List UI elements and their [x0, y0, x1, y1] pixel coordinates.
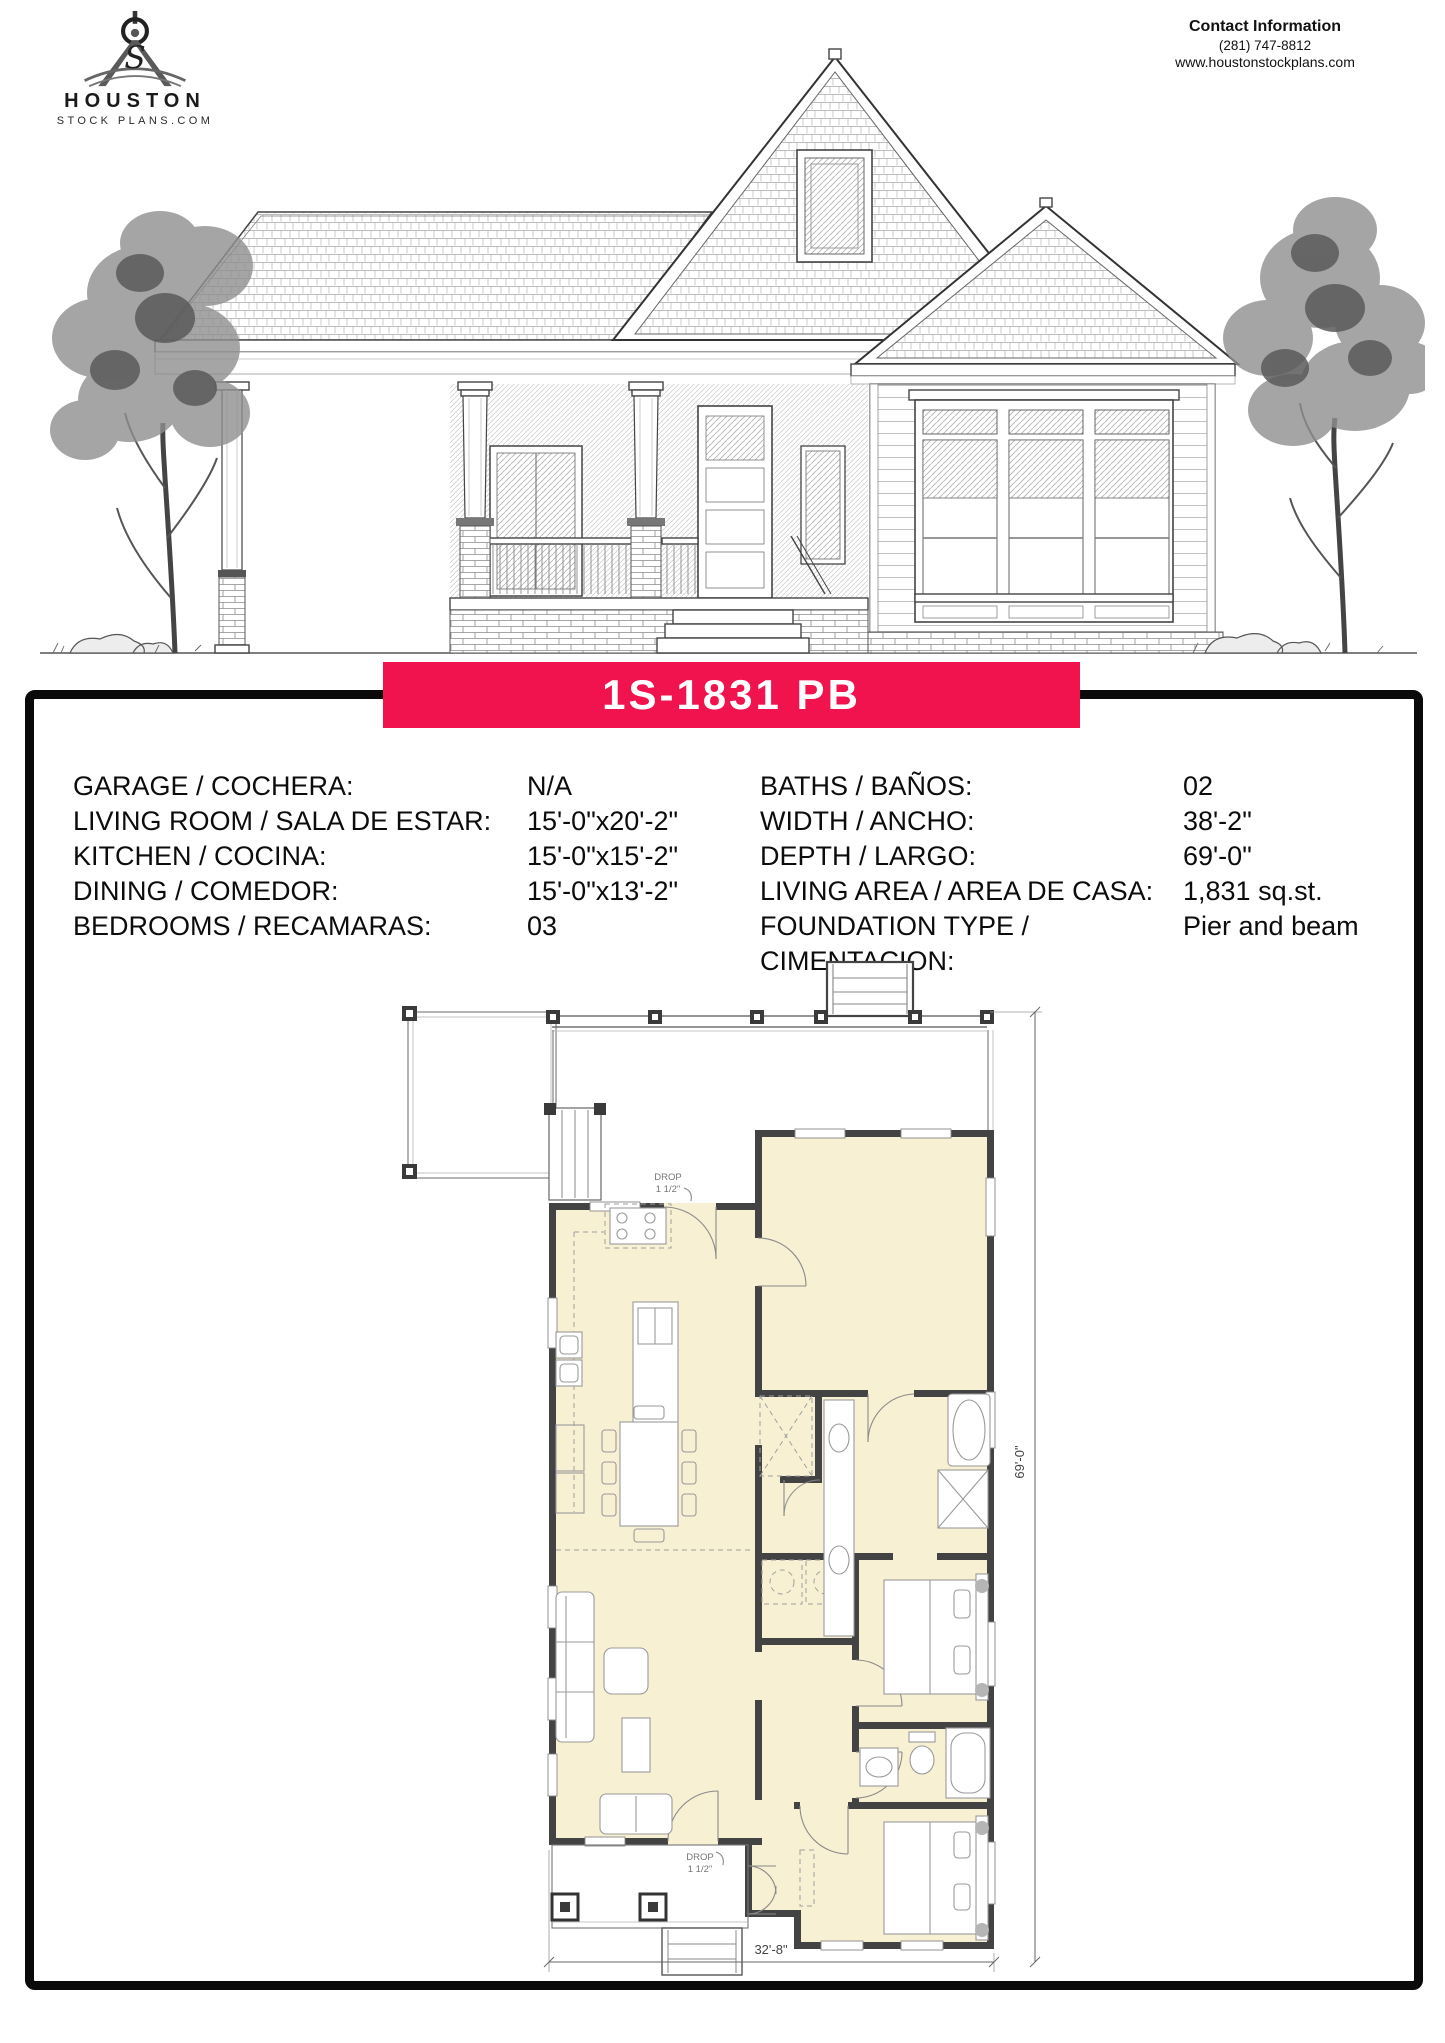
left-rocks — [70, 634, 173, 653]
porch-steps — [662, 1928, 742, 1975]
spec-value: 69'-0" — [1183, 839, 1359, 874]
plan-code-banner: 1S-1831 PB — [383, 662, 1080, 728]
window — [986, 1178, 995, 1236]
svg-text:DROP: DROP — [686, 1852, 713, 1863]
drop-note-entry: DROP 1 1/2" — [686, 1852, 723, 1875]
spec-label: LIVING AREA / AREA DE CASA: — [760, 874, 1153, 909]
svg-text:1 1/2": 1 1/2" — [656, 1184, 681, 1195]
right-tree — [1193, 197, 1425, 653]
spec-value: 38'-2" — [1183, 804, 1359, 839]
spec-label: KITCHEN / COCINA: — [73, 839, 491, 874]
spec-value: N/A — [527, 769, 678, 804]
house-elevation-drawing — [25, 38, 1425, 658]
bay-brick-skirt — [863, 632, 1223, 653]
svg-text:69'-0": 69'-0" — [1012, 1445, 1027, 1479]
front-door — [698, 406, 772, 598]
bathtub — [948, 1394, 990, 1466]
door-sidelight-window — [801, 446, 845, 564]
spec-values-right: 02 38'-2" 69'-0" 1,831 sq.st. Pier and b… — [1183, 769, 1359, 944]
window — [901, 1129, 951, 1138]
spec-label: DEPTH / LARGO: — [760, 839, 1153, 874]
svg-text:32'-8": 32'-8" — [754, 1942, 788, 1957]
floor-plan-drawing: DROP 1 1/2" DROP 1 1/2" 32'-8" 69'-0" — [395, 950, 1095, 2010]
spec-value: 15'-0"x15'-2" — [527, 839, 678, 874]
plan-code: 1S-1831 PB — [602, 671, 861, 719]
plan-sheet: S HOUSTON STOCK PLANS.COM Contact Inform… — [0, 0, 1445, 2043]
spec-value: 1,831 sq.st. — [1183, 874, 1359, 909]
spec-labels-right: BATHS / BAÑOS: WIDTH / ANCHO: DEPTH / LA… — [760, 769, 1153, 979]
spec-label: BATHS / BAÑOS: — [760, 769, 1153, 804]
spec-values-left: N/A 15'-0"x20'-2" 15'-0"x15'-2" 15'-0"x1… — [527, 769, 678, 944]
spec-label: DINING / COMEDOR: — [73, 874, 491, 909]
spec-value: Pier and beam — [1183, 909, 1359, 944]
kitchen-back-stairs — [544, 1103, 606, 1200]
window — [821, 1941, 863, 1950]
svg-text:1 1/2": 1 1/2" — [688, 1864, 713, 1875]
window — [548, 1754, 557, 1796]
drop-note-kitchen: DROP 1 1/2" — [654, 1172, 691, 1201]
spec-labels-left: GARAGE / COCHERA: LIVING ROOM / SALA DE … — [73, 769, 491, 944]
gable-finial — [829, 49, 841, 59]
contact-title: Contact Information — [1095, 18, 1435, 36]
spec-label: BEDROOMS / RECAMARAS: — [73, 909, 491, 944]
front-porch — [552, 1845, 748, 1975]
svg-text:DROP: DROP — [654, 1172, 681, 1183]
spec-label: LIVING ROOM / SALA DE ESTAR: — [73, 804, 491, 839]
porch-window — [490, 446, 582, 596]
spec-value: 15'-0"x13'-2" — [527, 874, 678, 909]
window — [901, 1941, 943, 1950]
spec-label: WIDTH / ANCHO: — [760, 804, 1153, 839]
triple-window — [909, 390, 1179, 622]
spec-label: GARAGE / COCHERA: — [73, 769, 491, 804]
spec-label: FOUNDATION TYPE / — [760, 909, 1153, 944]
porch-column-symbol — [552, 1894, 578, 1920]
spec-value: 03 — [527, 909, 678, 944]
depth-dimension: 69'-0" — [990, 1007, 1042, 1967]
spec-value: 15'-0"x20'-2" — [527, 804, 678, 839]
porch-column-symbol — [640, 1894, 666, 1920]
spec-value: 02 — [1183, 769, 1359, 804]
bedroom2-fixtures — [884, 1574, 989, 1700]
shower — [938, 1470, 988, 1528]
window — [795, 1129, 845, 1138]
porch-base — [450, 598, 868, 653]
dormer-window — [797, 150, 872, 262]
deck-stairs — [827, 962, 913, 1016]
